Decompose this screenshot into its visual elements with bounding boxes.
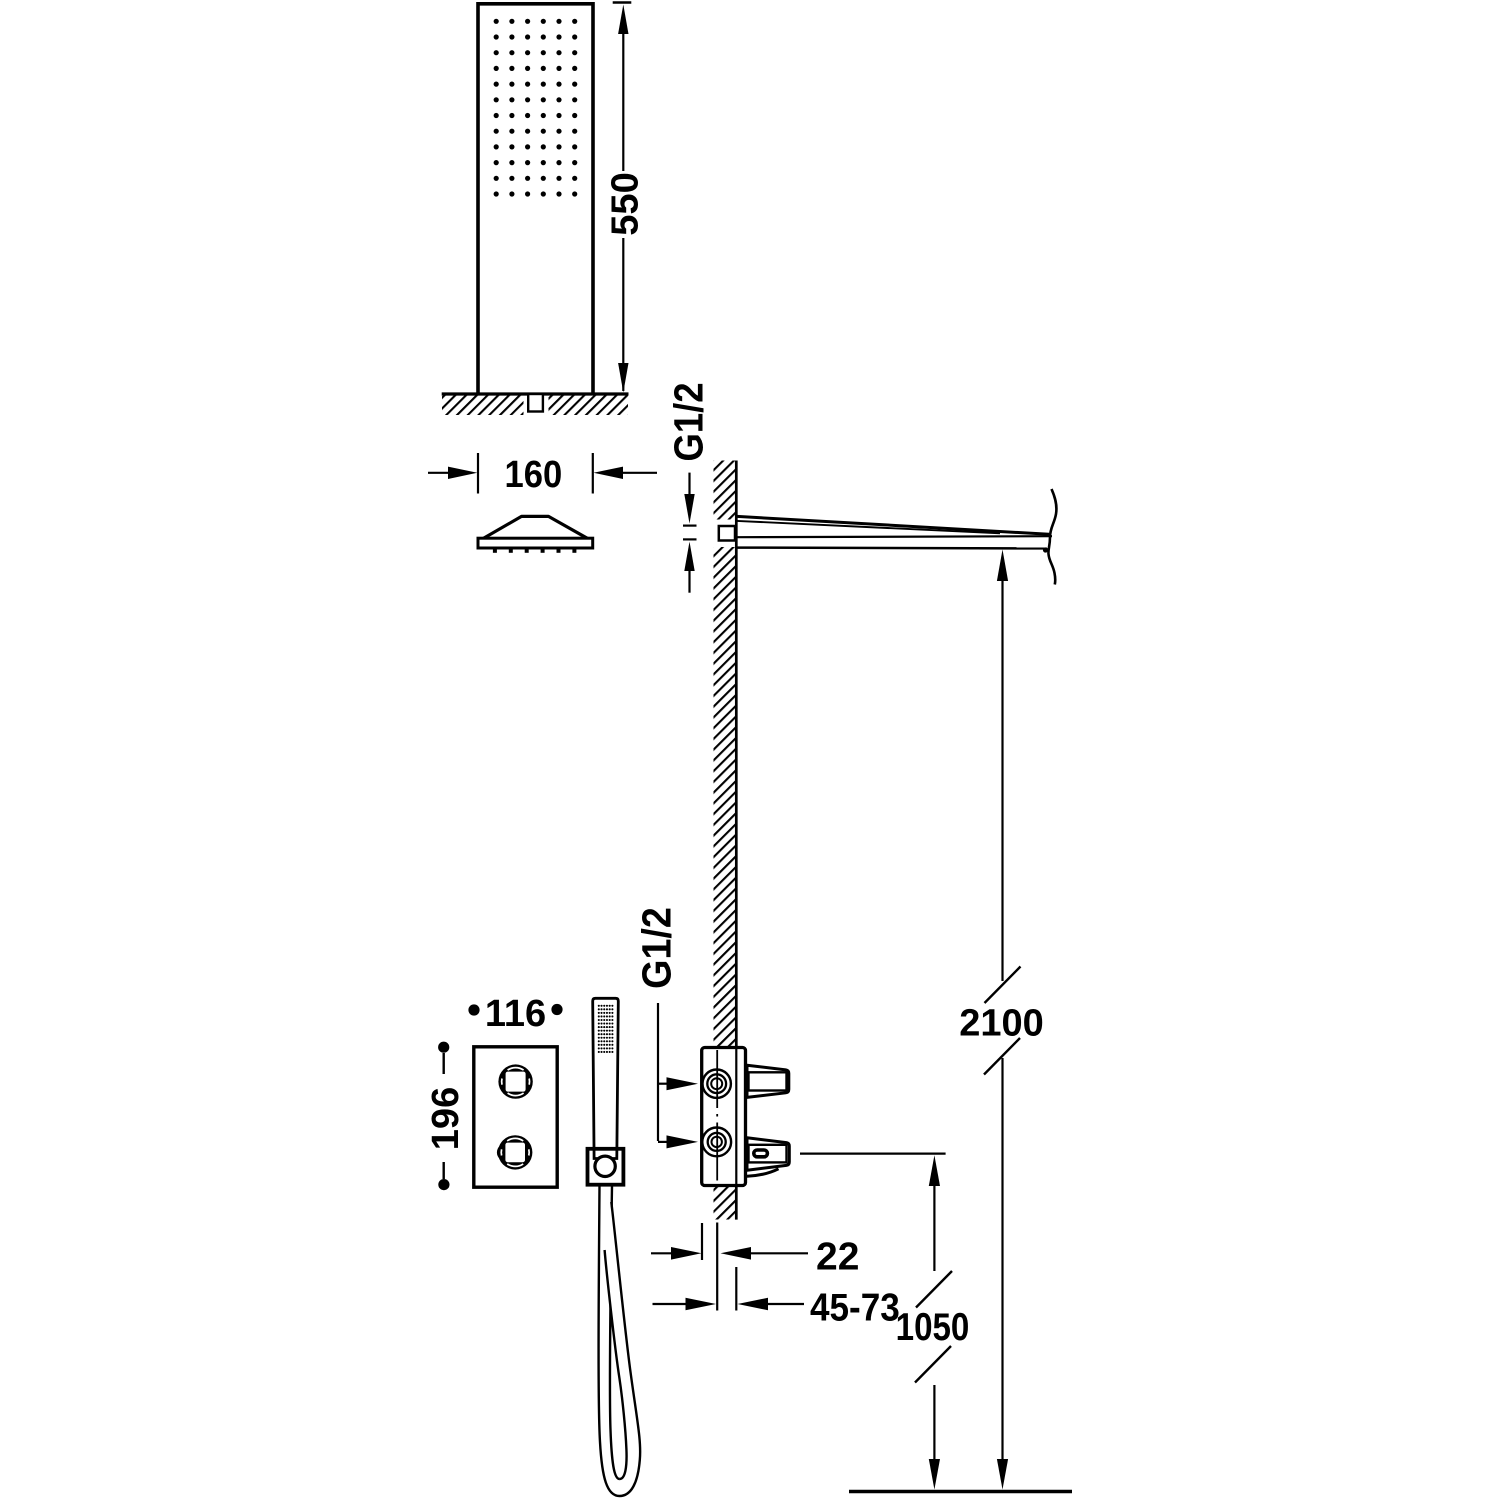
svg-text:G1/2: G1/2 <box>634 907 680 989</box>
svg-text:550: 550 <box>605 172 647 235</box>
svg-text:2100: 2100 <box>959 1003 1044 1045</box>
svg-text:116: 116 <box>485 993 546 1035</box>
svg-text:22: 22 <box>816 1236 859 1279</box>
svg-text:1050: 1050 <box>896 1304 970 1348</box>
svg-text:G1/2: G1/2 <box>667 382 712 461</box>
svg-text:196: 196 <box>425 1087 467 1150</box>
svg-text:160: 160 <box>505 452 563 495</box>
svg-text:45-73: 45-73 <box>810 1285 900 1329</box>
